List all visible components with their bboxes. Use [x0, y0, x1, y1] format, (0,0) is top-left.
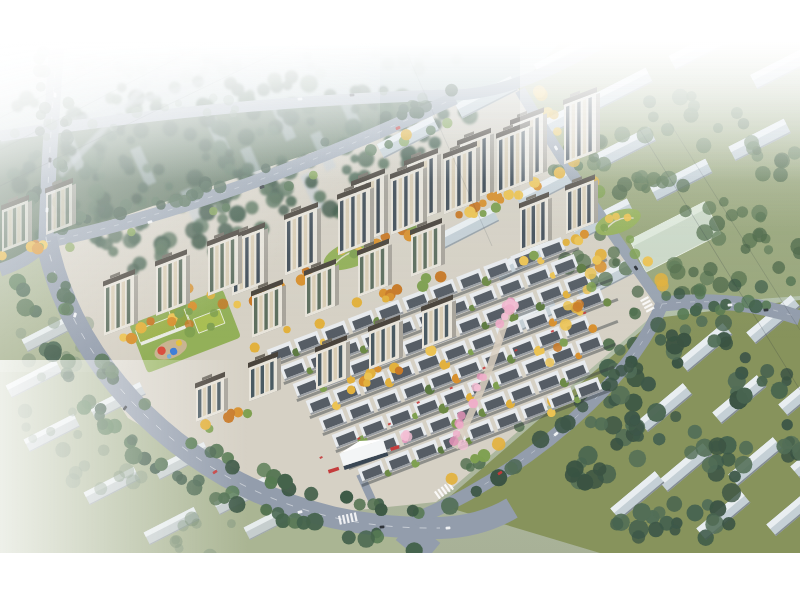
tree	[407, 505, 419, 517]
letterbox-bottom	[0, 553, 800, 600]
tree	[705, 515, 724, 534]
aerial-rendering: Aerial bird's-eye architectural renderin…	[0, 0, 800, 600]
tree	[453, 430, 460, 437]
tree	[545, 358, 554, 367]
tree	[468, 399, 478, 409]
tree	[400, 432, 409, 441]
tree	[721, 453, 735, 467]
tree	[653, 433, 665, 445]
tree	[265, 476, 278, 489]
tree	[364, 372, 372, 380]
tree	[735, 456, 753, 474]
tree	[257, 463, 271, 477]
tree	[272, 507, 285, 520]
northeast-haze	[520, 42, 800, 232]
tree	[479, 374, 487, 382]
tree	[565, 467, 580, 482]
screenshot-canvas: Aerial bird's-eye architectural renderin…	[0, 0, 800, 600]
tree	[277, 474, 293, 490]
tree	[666, 496, 682, 512]
tree	[555, 417, 572, 434]
tree	[347, 386, 356, 395]
tree	[647, 403, 666, 422]
tree	[456, 422, 464, 430]
tree	[471, 383, 480, 392]
tree	[648, 522, 664, 538]
tree	[781, 368, 794, 381]
tree	[477, 449, 490, 462]
tree	[342, 531, 356, 545]
tree	[633, 503, 651, 521]
tree	[490, 469, 507, 486]
tree	[604, 377, 618, 391]
tree	[632, 530, 645, 543]
tree	[297, 516, 311, 530]
tree	[532, 431, 550, 449]
tree	[593, 462, 607, 476]
tree	[595, 417, 608, 430]
tree	[471, 486, 482, 497]
tree	[340, 491, 353, 504]
tree	[449, 437, 458, 446]
tree	[670, 525, 681, 536]
tree	[629, 415, 640, 426]
tree	[504, 462, 517, 475]
tree	[446, 473, 458, 485]
tree	[395, 366, 403, 374]
tree	[687, 505, 704, 522]
tree	[729, 471, 741, 483]
tree	[702, 457, 718, 473]
tree	[688, 425, 702, 439]
tree	[375, 503, 388, 516]
tree	[304, 487, 318, 501]
tree	[457, 411, 466, 420]
tree	[782, 419, 793, 430]
tree	[624, 362, 634, 372]
tree	[458, 440, 469, 451]
car	[446, 526, 451, 529]
tree	[492, 437, 506, 451]
tree	[735, 366, 748, 379]
tree	[629, 450, 646, 467]
tree	[722, 517, 735, 530]
southwest-haze	[0, 360, 250, 553]
tree	[760, 364, 774, 378]
tree	[610, 517, 623, 530]
tree	[709, 437, 727, 455]
tree	[260, 504, 272, 516]
car	[379, 525, 384, 528]
tree	[363, 379, 370, 386]
tree	[722, 483, 741, 502]
tree	[610, 438, 623, 451]
tree	[441, 497, 459, 515]
tree	[771, 382, 788, 399]
tree	[740, 352, 751, 363]
letterbox-top	[0, 0, 800, 42]
tree	[354, 499, 366, 511]
tree	[776, 439, 792, 455]
tree	[739, 441, 753, 455]
tree	[578, 446, 597, 465]
tree	[736, 387, 753, 404]
tree	[614, 344, 626, 356]
light-flare	[0, 42, 380, 372]
tree	[358, 530, 375, 547]
tree	[670, 411, 681, 422]
tree	[470, 454, 479, 463]
tree	[641, 376, 656, 391]
tree	[653, 506, 666, 519]
